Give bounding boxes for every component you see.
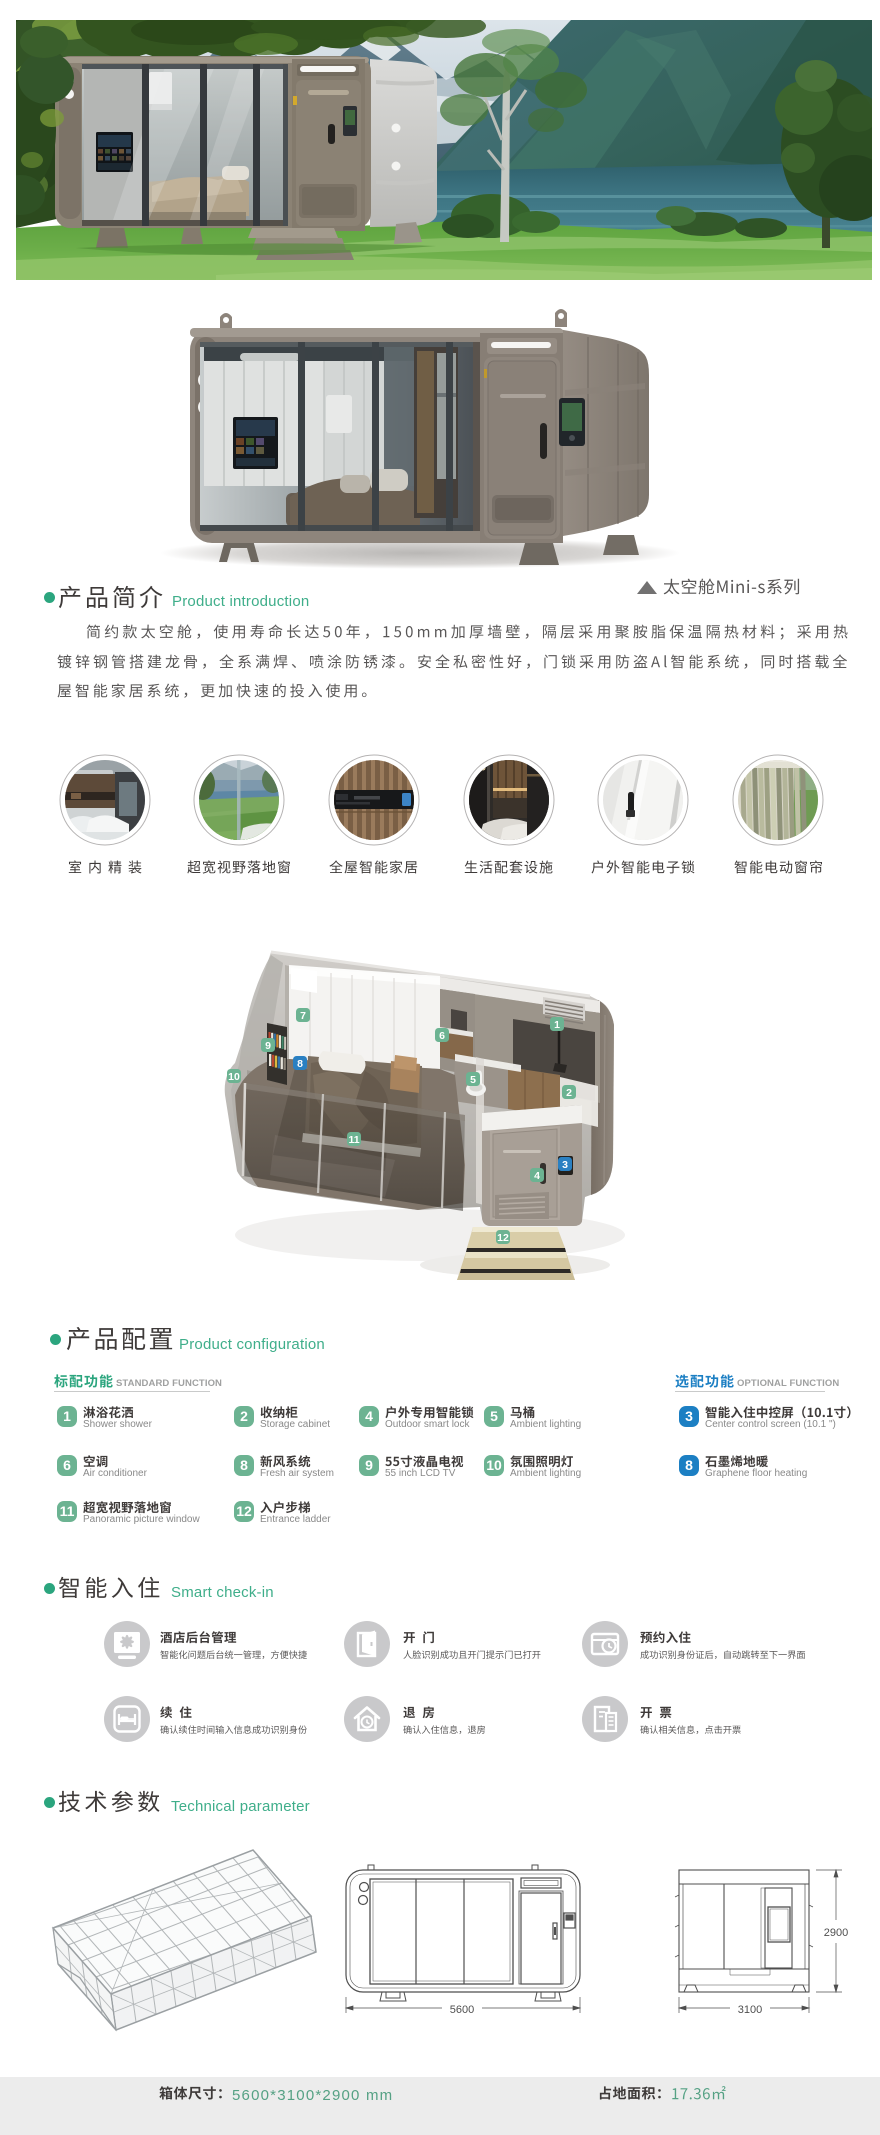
svg-text:7: 7 [300, 1010, 306, 1022]
svg-text:11: 11 [348, 1134, 359, 1146]
svg-text:4: 4 [534, 1170, 540, 1182]
svg-text:3: 3 [562, 1159, 568, 1171]
svg-text:2900: 2900 [824, 1927, 848, 1939]
svg-text:5600: 5600 [450, 2004, 474, 2016]
svg-text:5: 5 [470, 1074, 476, 1086]
svg-text:10: 10 [228, 1071, 240, 1083]
svg-text:12: 12 [497, 1232, 509, 1244]
svg-text:1: 1 [554, 1019, 560, 1031]
svg-text:2: 2 [566, 1087, 572, 1099]
svg-text:3100: 3100 [738, 2004, 762, 2016]
svg-text:9: 9 [265, 1040, 271, 1052]
svg-text:8: 8 [297, 1058, 303, 1070]
svg-text:6: 6 [439, 1030, 445, 1042]
